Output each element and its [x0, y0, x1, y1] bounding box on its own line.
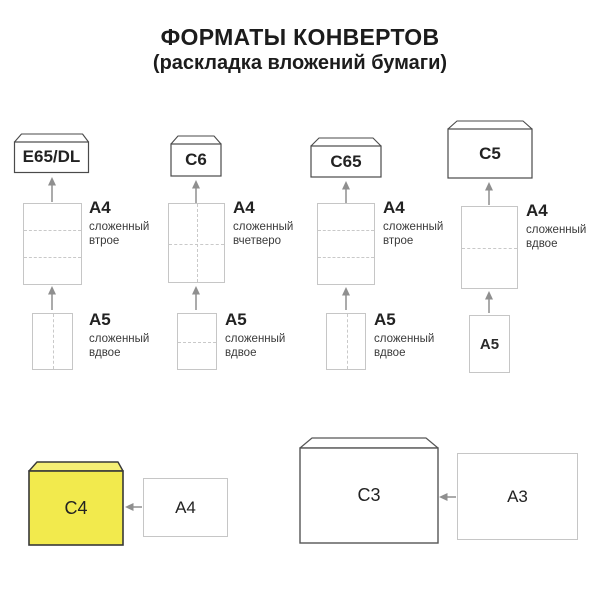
paper-a4-label: A4 [526, 201, 548, 221]
page-subtitle: (раскладка вложений бумаги) [0, 52, 600, 75]
sheet-a5-c5: A5 [469, 315, 510, 373]
paper-a4-desc: сложенный вчетверо [233, 220, 293, 248]
envelope-e65dl-label: E65/DL [13, 142, 90, 172]
sheet-a4-c6 [168, 203, 225, 283]
paper-desc-line: втрое [89, 234, 149, 248]
paper-desc-line: сложенный [526, 223, 586, 237]
envelope-c4-label: C4 [26, 471, 126, 545]
paper-a5-label: A5 [480, 336, 499, 353]
paper-a4-label: A4 [233, 198, 255, 218]
envelope-formats-diagram: ФОРМАТЫ КОНВЕРТОВ (раскладка вложений бу… [0, 0, 600, 600]
sheet-a5-c65 [326, 313, 366, 370]
paper-desc-line: вдвое [374, 346, 434, 360]
arrow-up-icon [483, 290, 495, 314]
envelope-flap [311, 138, 381, 146]
fold-line [53, 314, 54, 369]
envelope-c6-label: C6 [169, 144, 223, 176]
paper-a4-desc: сложенный вдвое [526, 223, 586, 251]
paper-desc-line: вдвое [526, 237, 586, 251]
arrow-up-icon [190, 179, 202, 204]
page-title: ФОРМАТЫ КОНВЕРТОВ [0, 24, 600, 51]
arrow-up-icon [46, 285, 58, 311]
arrow-up-icon [483, 181, 495, 206]
fold-line [24, 230, 81, 231]
arrow-up-icon [46, 176, 58, 203]
paper-desc-line: сложенный [89, 220, 149, 234]
fold-line [318, 230, 374, 231]
paper-a4-label: A4 [383, 198, 405, 218]
paper-desc-line: вчетверо [233, 234, 293, 248]
arrow-left-icon [124, 501, 143, 513]
paper-desc-line: втрое [383, 234, 443, 248]
sheet-a4-e65dl [23, 203, 82, 285]
arrow-up-icon [340, 286, 352, 311]
paper-desc-line: вдвое [225, 346, 285, 360]
paper-desc-line: сложенный [374, 332, 434, 346]
sheet-a5-c6 [177, 313, 217, 370]
paper-a4-label: A4 [89, 198, 111, 218]
envelope-flap [15, 134, 89, 142]
fold-line [197, 204, 198, 282]
paper-desc-line: сложенный [89, 332, 149, 346]
envelope-flap [171, 136, 221, 144]
arrow-left-icon [438, 491, 457, 503]
paper-desc-line: сложенный [233, 220, 293, 234]
envelope-c3-label: C3 [298, 448, 440, 543]
arrow-up-icon [340, 180, 352, 204]
fold-line [169, 244, 224, 245]
envelope-c5-label: C5 [446, 129, 534, 178]
paper-desc-line: сложенный [383, 220, 443, 234]
paper-a5-desc: сложенный вдвое [225, 332, 285, 360]
sheet-a4-c5 [461, 206, 518, 289]
envelope-c65-label: C65 [309, 146, 383, 177]
paper-desc-line: вдвое [89, 346, 149, 360]
sheet-a3-bottom: A3 [457, 453, 578, 540]
sheet-a4-c65 [317, 203, 375, 285]
envelope-flap [448, 121, 532, 129]
paper-a5-desc: сложенный вдвое [89, 332, 149, 360]
paper-a5-label: A5 [89, 310, 111, 330]
fold-line [347, 314, 348, 369]
fold-line [178, 342, 216, 343]
fold-line [462, 248, 517, 249]
paper-a5-desc: сложенный вдвое [374, 332, 434, 360]
paper-a4-desc: сложенный втрое [383, 220, 443, 248]
paper-a3-label: A3 [507, 487, 528, 507]
sheet-a4-bottom: A4 [143, 478, 228, 537]
paper-a5-label: A5 [225, 310, 247, 330]
paper-desc-line: сложенный [225, 332, 285, 346]
paper-a5-label: A5 [374, 310, 396, 330]
paper-a4-label: A4 [175, 498, 196, 518]
arrow-up-icon [190, 285, 202, 311]
fold-line [318, 257, 374, 258]
envelope-flap [300, 438, 438, 448]
sheet-a5-e65dl [32, 313, 73, 370]
fold-line [24, 257, 81, 258]
envelope-flap [29, 462, 123, 471]
paper-a4-desc: сложенный втрое [89, 220, 149, 248]
